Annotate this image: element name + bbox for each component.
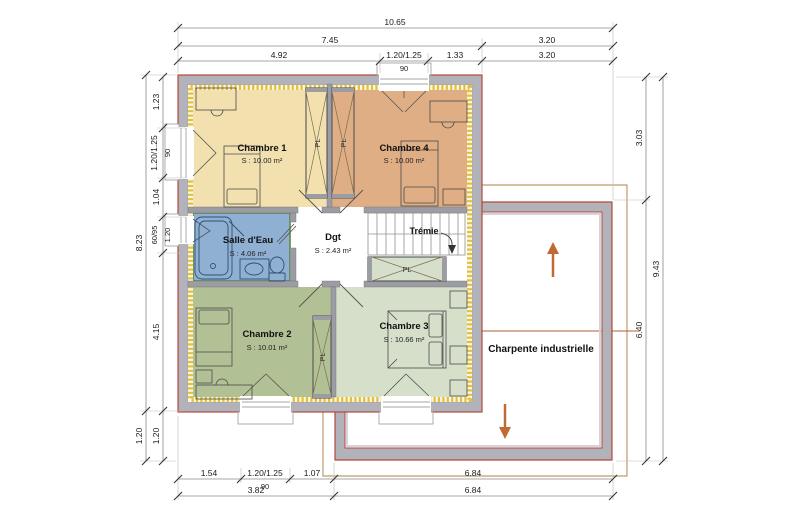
room-area-dgt: S : 2.43 m²: [315, 246, 352, 255]
room-label-salle-eau: Salle d'Eau: [223, 235, 274, 246]
tremie-label: Trémie: [409, 226, 438, 236]
dim-bottom-row1-2: 1.07: [304, 468, 321, 478]
partition-wall: [290, 213, 296, 222]
dim-chain-right: 3.03 6.40 9.43: [634, 73, 667, 465]
dim-right-inner-0: 3.03: [634, 129, 644, 146]
roof-arrow-down-head-icon: [499, 427, 511, 439]
room-salle-eau: [193, 213, 290, 281]
closet-cap: [306, 194, 327, 198]
closet-label-pl: PL: [341, 139, 348, 148]
closet-cap: [442, 257, 446, 281]
partition-wall: [322, 281, 340, 287]
dim-bottom-row2-1: 6.84: [465, 485, 482, 495]
closet-cap: [313, 316, 331, 320]
dim-bottom-row2-0: 3.82: [248, 485, 265, 495]
closet-chambre4: PL: [332, 88, 354, 198]
partition-wall: [364, 281, 467, 287]
window-sill: [379, 412, 433, 424]
room-label-chambre4: Chambre 4: [379, 143, 429, 154]
dim-top-row3-3: 3.20: [539, 50, 556, 60]
dim-top-total: 10.65: [384, 17, 406, 27]
window-sill: [238, 412, 293, 424]
dim-left-inner-4: 4.15: [151, 323, 161, 340]
window-gap: [379, 73, 429, 91]
window-gap: [176, 127, 194, 179]
window-gap: [240, 396, 291, 413]
closet-chambre1: PL: [306, 88, 327, 198]
window-gap: [176, 216, 194, 244]
room-area-salle-eau: S : 4.06 m²: [230, 249, 267, 258]
roof-arrow-up-head-icon: [547, 242, 559, 254]
dim-chain-bottom: 1.54 1.20/1.25 90 1.07 6.84 3.82 6.84: [174, 468, 617, 500]
dim-left-inner-0: 1.23: [151, 93, 161, 110]
dim-top-row3-1: 1.20/1.25: [386, 50, 422, 60]
dim-bottom-row1-0: 1.54: [201, 468, 218, 478]
closet-cap: [368, 257, 372, 281]
dim-top-row3-0: 4.92: [271, 50, 288, 60]
dim-right-outer: 9.43: [651, 260, 661, 277]
dim-top-row3-2: 1.33: [447, 50, 464, 60]
floorplan-drawing: PL PL PL PL Trémie: [0, 0, 800, 516]
dim-left-inner-3: 60/95: [150, 226, 159, 245]
dim-left-outer-0: 8.23: [134, 234, 144, 251]
dim-top-row2-0: 7.45: [322, 35, 339, 45]
room-label-chambre3: Chambre 3: [379, 321, 428, 332]
partition-wall: [188, 281, 298, 287]
dim-left-inner-2: 1.04: [151, 188, 161, 205]
window-gap: [381, 396, 431, 413]
partition-wall: [331, 287, 336, 397]
dim-top-row2-1: 3.20: [539, 35, 556, 45]
dim-right-inner-1: 6.40: [634, 321, 644, 338]
room-chambre2: [193, 287, 331, 397]
dim-top-sill: 90: [400, 64, 408, 73]
dim-bottom-row1-1: 1.20/1.25: [247, 468, 283, 478]
room-area-chambre4: S : 10.00 m²: [384, 156, 425, 165]
closet-hall: PL: [368, 257, 446, 281]
partition-wall: [290, 248, 296, 281]
room-area-chambre3: S : 10.66 m²: [384, 335, 425, 344]
room-label-chambre2: Chambre 2: [242, 329, 291, 340]
dim-left-allege: 1.20: [163, 228, 172, 243]
partition-wall: [188, 207, 298, 213]
roof-slope-arrows: [499, 242, 559, 439]
dim-left-outer-1: 1.20: [134, 427, 144, 444]
closet-cap: [332, 88, 354, 92]
partition-wall: [364, 207, 467, 213]
floorplan-canvas: PL PL PL PL Trémie: [0, 0, 800, 516]
closet-cap: [306, 88, 327, 92]
room-area-chambre1: S : 10.00 m²: [242, 156, 283, 165]
dim-left-inner-1: 1.20/1.25: [149, 135, 159, 171]
closet-cap: [332, 194, 354, 198]
charpente-label: Charpente industrielle: [488, 344, 594, 355]
partition-wall: [322, 207, 340, 213]
room-area-chambre2: S : 10.01 m²: [247, 343, 288, 352]
closet-label-pl: PL: [320, 353, 327, 362]
room-label-dgt: Dgt: [325, 232, 342, 243]
closet-label-pl: PL: [315, 139, 322, 148]
room-label-chambre1: Chambre 1: [237, 143, 287, 154]
closet-label-pl: PL: [403, 267, 412, 274]
dim-left-inner-5: 1.20: [151, 427, 161, 444]
partition-wall: [327, 84, 332, 207]
dim-bottom-row1-3: 6.84: [465, 468, 482, 478]
closet-cap: [313, 394, 331, 398]
dim-left-sill: 90: [163, 149, 172, 157]
closet-chambre2: PL: [313, 316, 331, 398]
